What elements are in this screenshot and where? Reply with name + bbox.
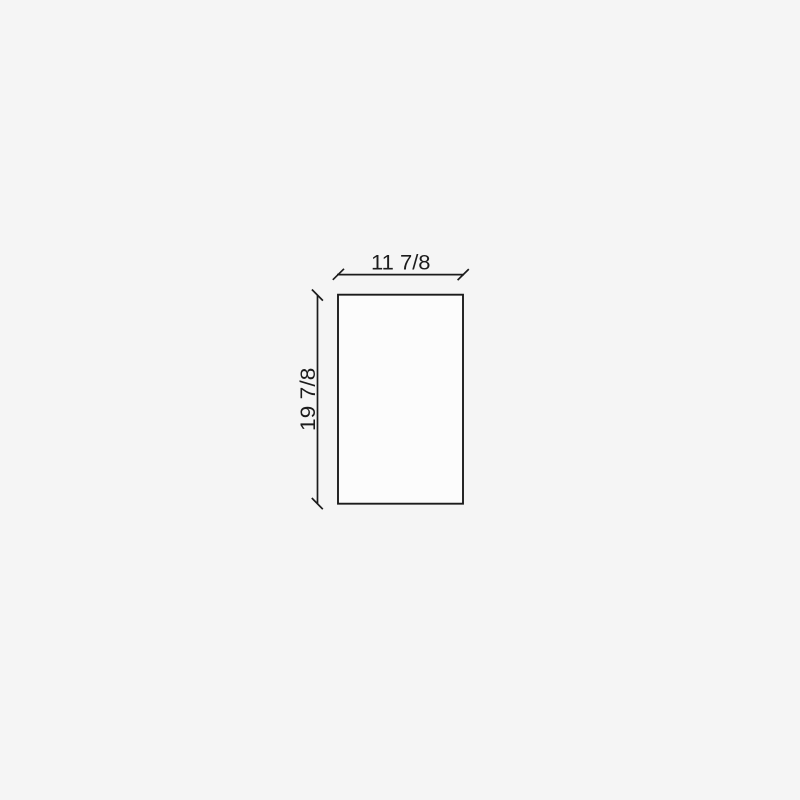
svg-text:19 7/8: 19 7/8 xyxy=(296,368,320,432)
svg-text:11 7/8: 11 7/8 xyxy=(371,251,431,275)
